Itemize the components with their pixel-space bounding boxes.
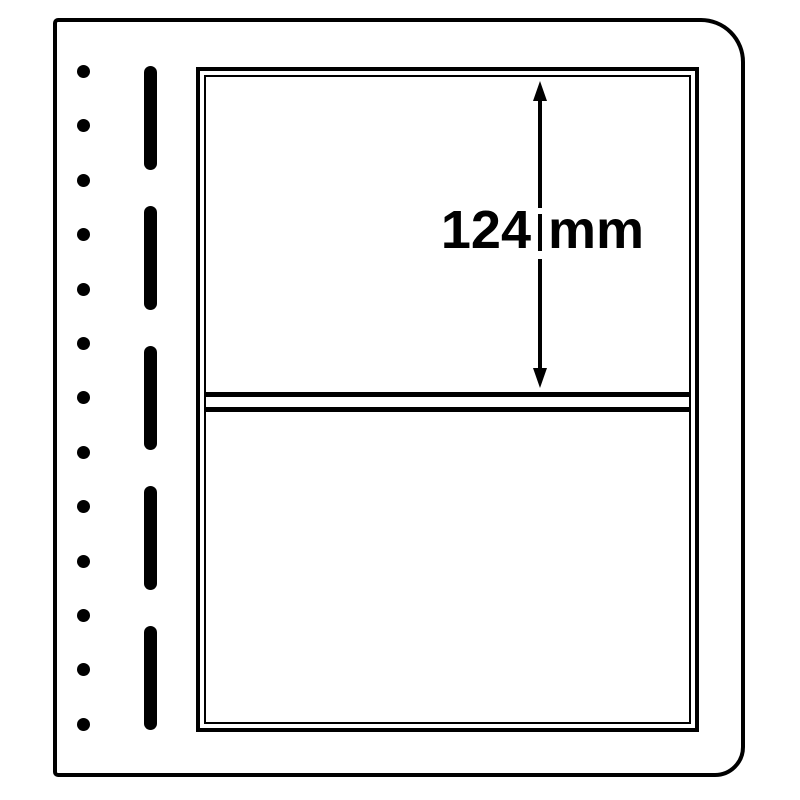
- punch-hole: [77, 174, 90, 187]
- dimension-arrow-shaft: [538, 259, 542, 369]
- punch-hole: [77, 283, 90, 296]
- punch-hole: [77, 446, 90, 459]
- dimension-arrow-shaft: [538, 214, 542, 251]
- punch-hole: [77, 391, 90, 404]
- punch-hole: [77, 555, 90, 568]
- arrow-down-icon: [533, 368, 547, 388]
- perforation-dash: [144, 66, 157, 170]
- perforation-dash: [144, 626, 157, 730]
- punch-hole-column: [77, 65, 90, 731]
- pocket-frame-outer: [196, 67, 699, 732]
- pocket-divider-bottom-line: [204, 407, 691, 412]
- punch-hole: [77, 65, 90, 78]
- punch-hole: [77, 718, 90, 731]
- pocket-bottom: [207, 411, 688, 721]
- dimension-value: 124: [0, 203, 531, 257]
- punch-hole: [77, 663, 90, 676]
- perforation-column: [144, 66, 157, 730]
- punch-hole: [77, 500, 90, 513]
- punch-hole: [77, 609, 90, 622]
- perforation-dash: [144, 486, 157, 590]
- punch-hole: [77, 119, 90, 132]
- dimension-arrow-shaft: [538, 100, 542, 208]
- album-sheet-illustration: 124 mm: [0, 0, 800, 800]
- punch-hole: [77, 337, 90, 350]
- arrow-up-icon: [533, 81, 547, 101]
- dimension-unit: mm: [548, 203, 644, 257]
- perforation-dash: [144, 346, 157, 450]
- pocket-divider-top-line: [204, 392, 691, 397]
